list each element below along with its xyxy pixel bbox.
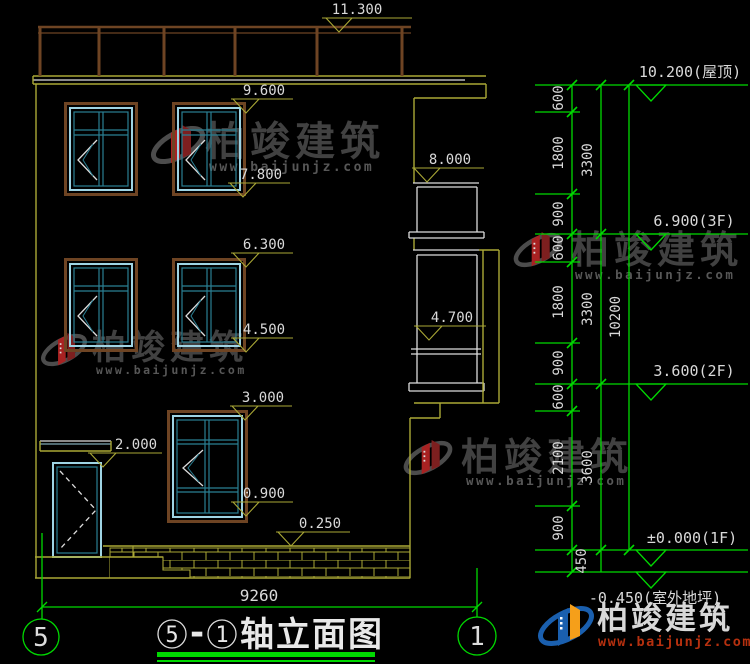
brand-logo-url: www.baijunjz.com	[598, 634, 750, 650]
title-underline-thin	[157, 660, 375, 662]
elevation-label: ±0.000(1F)	[647, 529, 737, 547]
title-underline-thick	[157, 652, 375, 657]
dim-label: 450	[574, 548, 590, 573]
dim-label: 600	[551, 85, 567, 110]
level-label: 3.000	[242, 390, 284, 406]
axis-bubble-right-label: 1	[469, 622, 485, 652]
level-label: 4.500	[243, 322, 285, 338]
level-label: 6.300	[243, 237, 285, 253]
dim-label: 900	[551, 201, 567, 226]
title-axis-end: 1	[215, 623, 228, 648]
level-label: 11.300	[332, 2, 383, 18]
level-label: 0.250	[299, 516, 341, 532]
level-label: 0.900	[243, 486, 285, 502]
dim-label: 900	[551, 515, 567, 540]
dim-label: 10200	[608, 296, 624, 338]
level-label: 4.700	[431, 310, 473, 326]
dim-label: 3600	[580, 450, 596, 484]
dim-label: 1800	[551, 285, 567, 319]
cad-elevation-drawing: 柏竣建筑 www.baijunjz.com 柏竣建筑 www.baijunjz.…	[0, 0, 750, 664]
title-text: 轴立面图	[240, 615, 384, 655]
brand-logo-text: 柏竣建筑	[597, 601, 733, 637]
elevation-label: 10.200(屋顶)	[639, 63, 741, 81]
axis-bubble-left-label: 5	[33, 623, 49, 653]
watermark-url: www.baijunjz.com	[575, 267, 735, 282]
dim-label: 900	[551, 350, 567, 375]
level-label: 2.000	[115, 437, 157, 453]
dim-label: 1800	[551, 136, 567, 170]
dim-label: 3300	[580, 143, 596, 177]
dim-label: 600	[551, 235, 567, 260]
bottom-dim-label: 9260	[240, 586, 279, 605]
watermark-url: www.baijunjz.com	[96, 363, 247, 377]
level-label: 8.000	[429, 152, 471, 168]
dim-label: 600	[551, 384, 567, 409]
elevation-label: 6.900(3F)	[653, 212, 734, 230]
elevation-label: 3.600(2F)	[653, 362, 734, 380]
watermark-url: www.baijunjz.com	[209, 160, 374, 175]
drawing-title: 5 - 1 轴立面图	[157, 613, 384, 662]
watermark-brand: 柏竣建筑	[92, 328, 248, 368]
level-label: 9.600	[243, 83, 285, 99]
dim-label: 3300	[580, 292, 596, 326]
title-axis-start: 5	[165, 623, 178, 648]
watermark-brand: 柏竣建筑	[205, 119, 385, 165]
title-dash: -	[190, 613, 206, 653]
dim-label: 2100	[551, 441, 567, 475]
watermark-url: www.baijunjz.com	[466, 473, 626, 488]
drawing-canvas: 柏竣建筑 www.baijunjz.com 柏竣建筑 www.baijunjz.…	[0, 0, 750, 664]
level-label: 7.800	[240, 167, 282, 183]
